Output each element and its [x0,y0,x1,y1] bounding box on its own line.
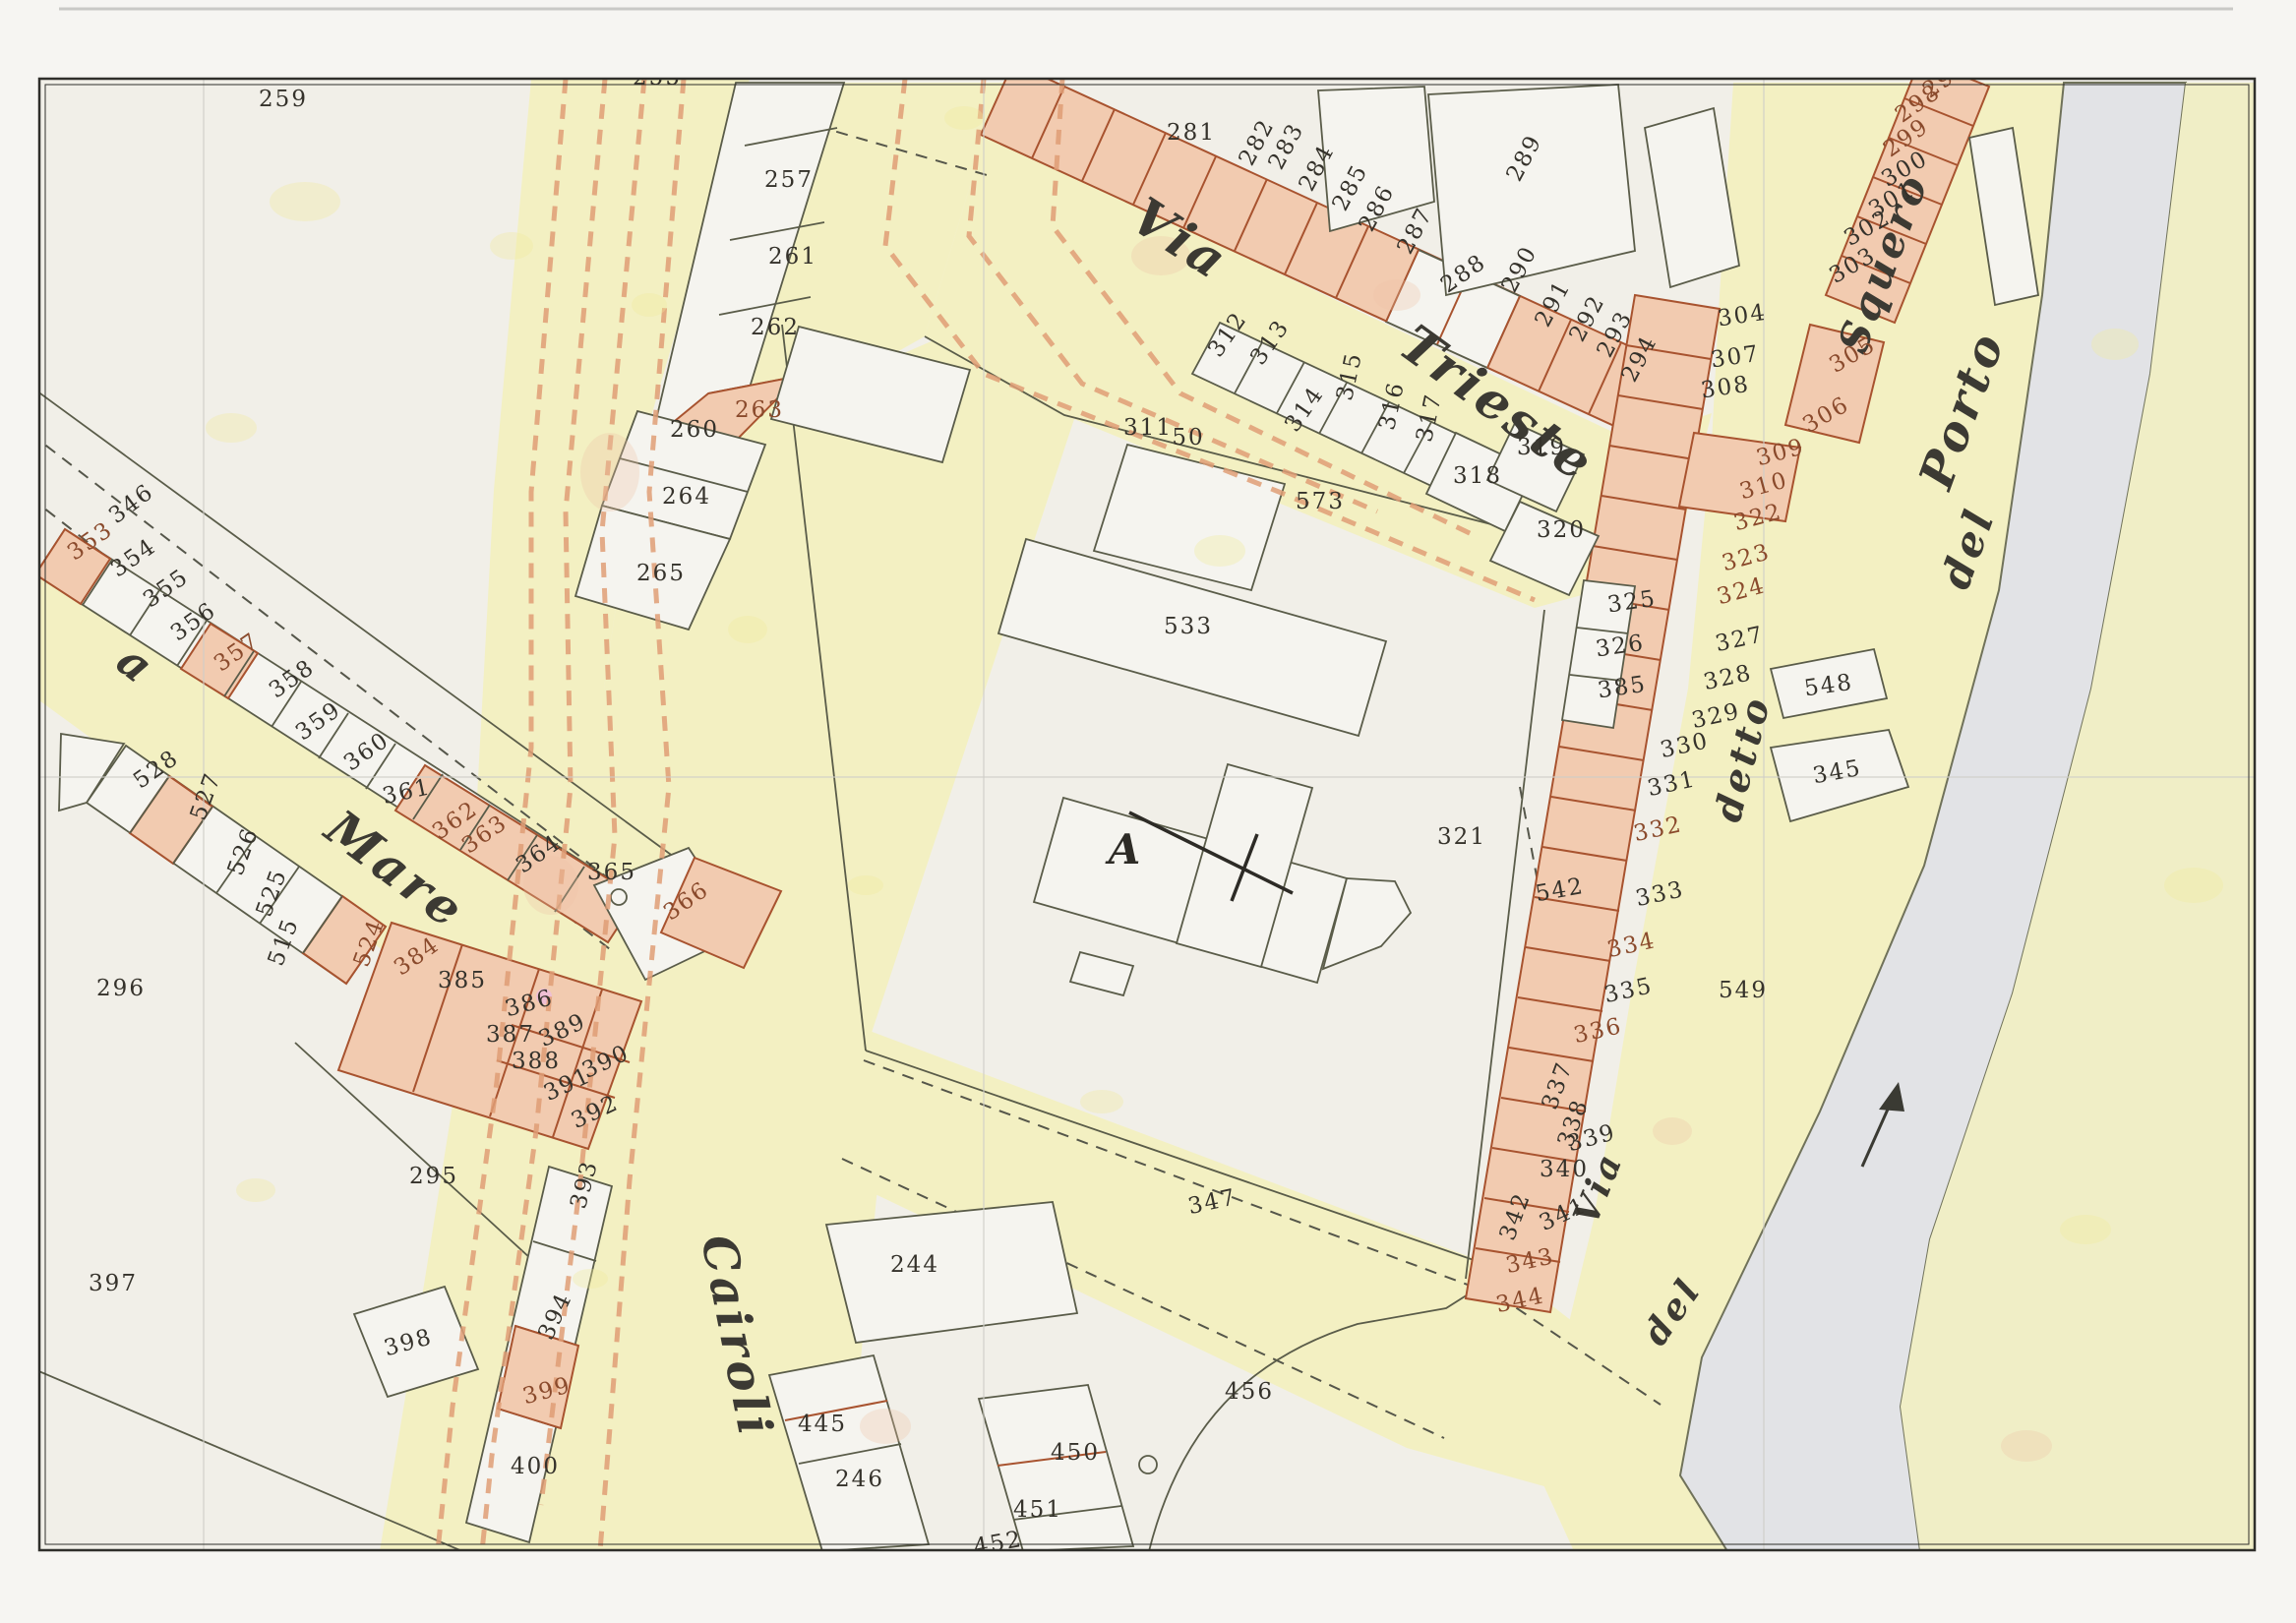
cadastral-map: ViaTriesteaMareCairoliSqueroPortodeldett… [0,0,2296,1623]
parcel-number-label: 320 [1537,517,1586,543]
parcel-number-label: 340 [1540,1157,1589,1182]
parcel-number-label: 387 [486,1022,535,1048]
parcel-number-label: 256 [746,39,799,73]
parcel-number-label: 400 [511,1454,560,1479]
parcel-number-label: 263 [735,397,784,423]
parcel-number-label: 549 [1719,978,1768,1003]
parcel-number-label: 50 [1172,425,1204,451]
parcel-number-label: 296 [96,976,146,1001]
scanned-map-page: ViaTriesteaMareCairoliSqueroPortodeldett… [0,0,2296,1623]
parcel-number-label: 533 [1164,614,1213,639]
parcel-number-label: 281 [1167,120,1216,146]
parcel-number-label: 385 [438,968,487,993]
parcel-number-label: 259 [259,87,308,112]
parcel-number-label: 311 [1123,415,1173,441]
parcel-number-label: 260 [670,417,719,443]
parcel-number-label: 397 [89,1271,138,1296]
parcel-number-label: 573 [1296,489,1345,514]
parcel-number-label: 262 [751,315,800,340]
parcel-number-label: 319 [1517,435,1566,460]
parcel-number-label: 244 [890,1252,939,1278]
parcel-number-label: 265 [636,561,686,586]
church-label: A [1105,825,1141,873]
parcel-number-label: 295 [409,1164,458,1189]
parcel-number-label: 456 [1225,1379,1274,1405]
parcel-number-label: 388 [512,1049,561,1074]
parcel-number-label: 264 [662,484,711,510]
parcel-number-label: 257 [764,167,814,193]
parcel-number-label: 451 [1013,1497,1062,1523]
parcel-number-label: 321 [1437,824,1486,850]
parcel-number-label: 445 [798,1412,847,1437]
parcel-number-label: 261 [768,244,817,270]
parcel-number-label: 246 [835,1467,884,1492]
parcel-number-label: 450 [1051,1440,1100,1466]
parcel-number-label: 365 [587,860,636,885]
parcel-number-label: 318 [1453,463,1502,489]
